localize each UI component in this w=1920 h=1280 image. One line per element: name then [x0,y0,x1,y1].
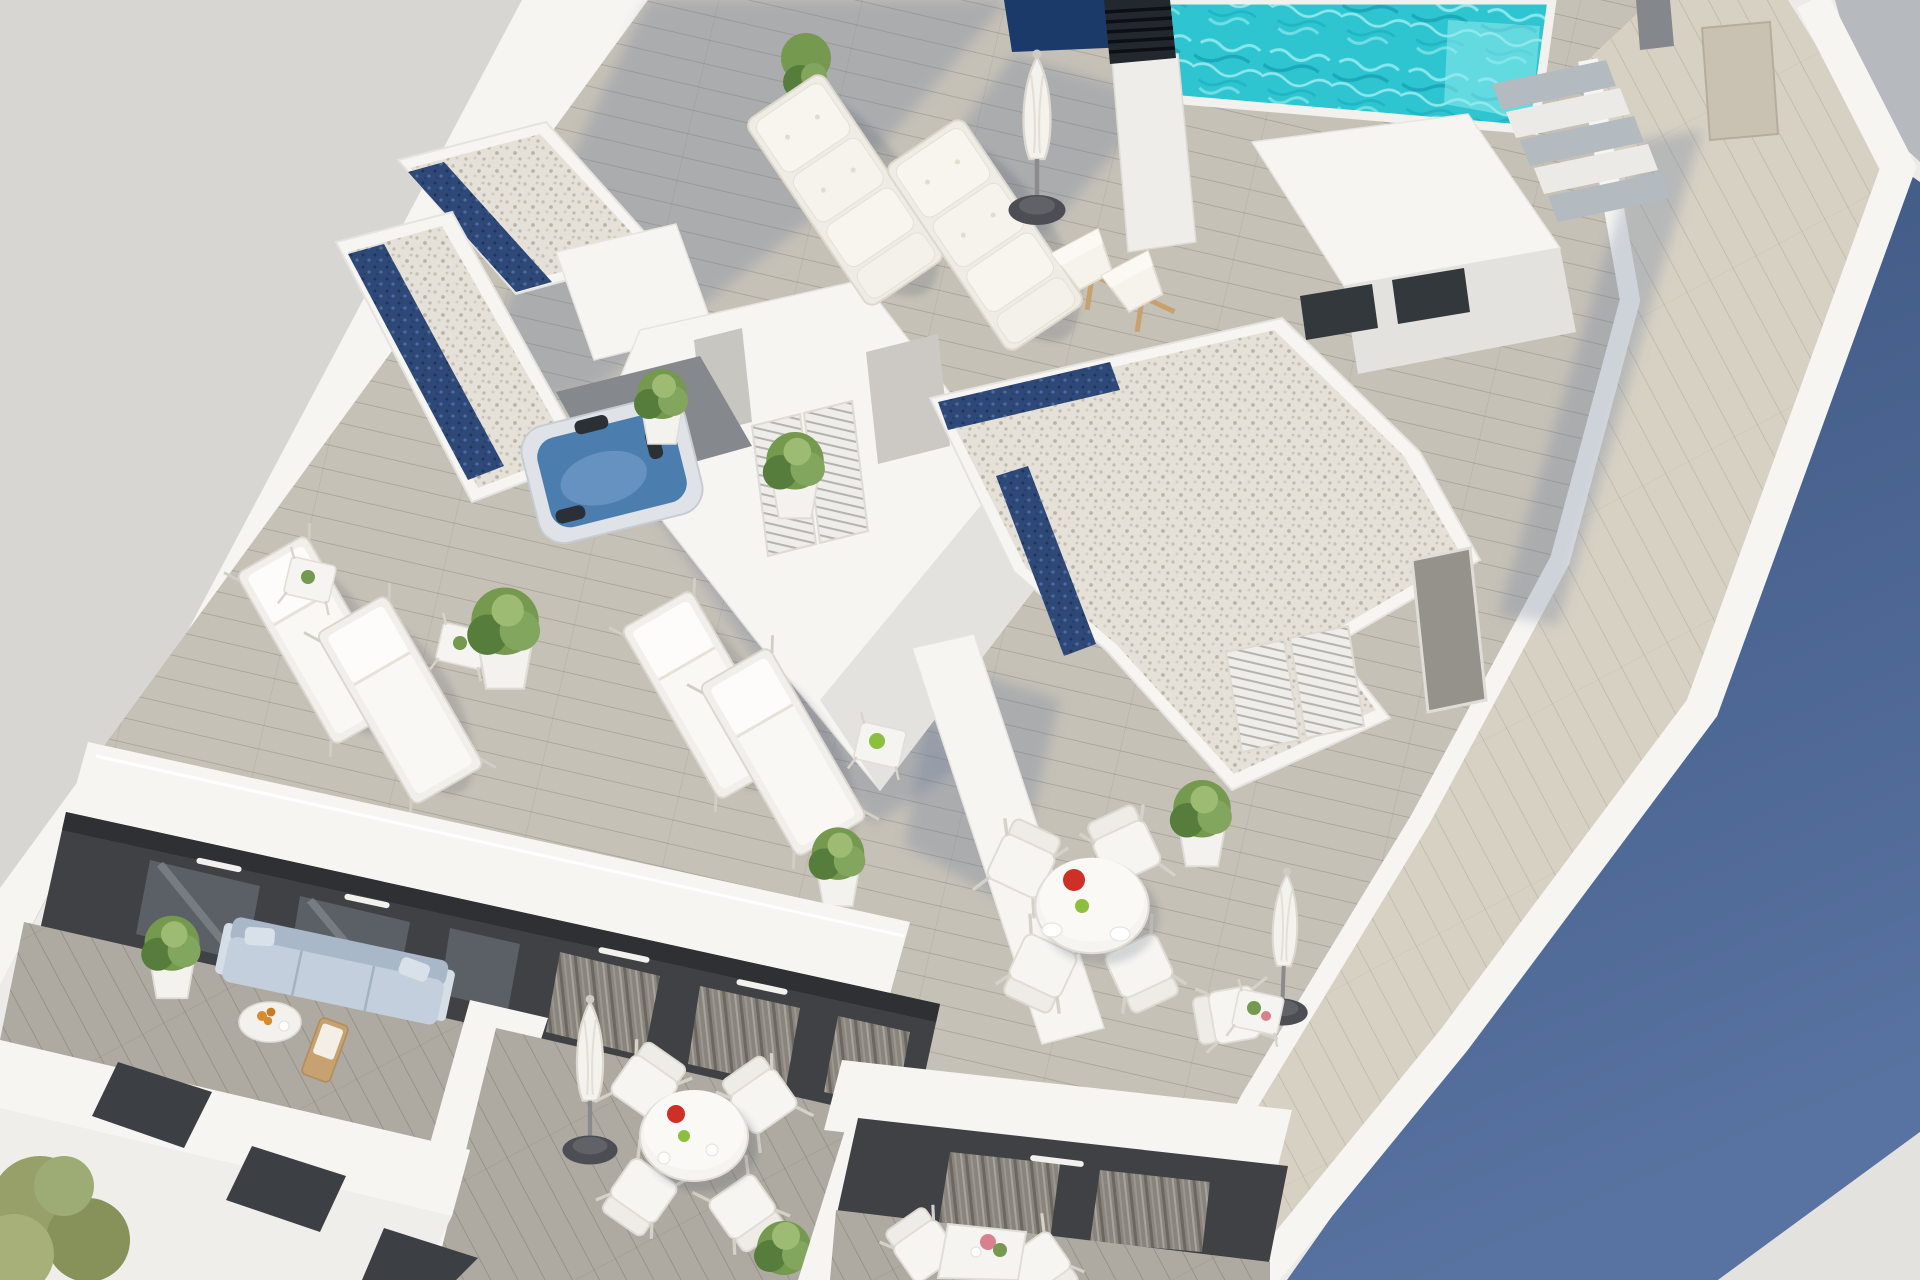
cup [658,1152,670,1164]
table-plant [453,636,467,650]
plate [1110,927,1130,941]
table-flowers [1261,1011,1271,1021]
table-plant [993,1243,1007,1257]
green-apple [678,1130,690,1142]
tomato-plate [667,1105,685,1123]
tomato-plate [1063,869,1085,891]
cup [706,1144,718,1156]
plate [1042,923,1062,937]
cup [971,1247,981,1257]
table-plant [1247,1001,1261,1015]
square-table [938,1224,1026,1280]
roof-access-door [1702,22,1778,140]
table-plant [301,570,315,584]
coffee-table-oranges [239,1002,301,1042]
green-apple [1075,899,1089,913]
rendered-image [0,0,1920,1280]
walkway-window [1636,0,1674,50]
fruit-bowl [869,733,885,749]
